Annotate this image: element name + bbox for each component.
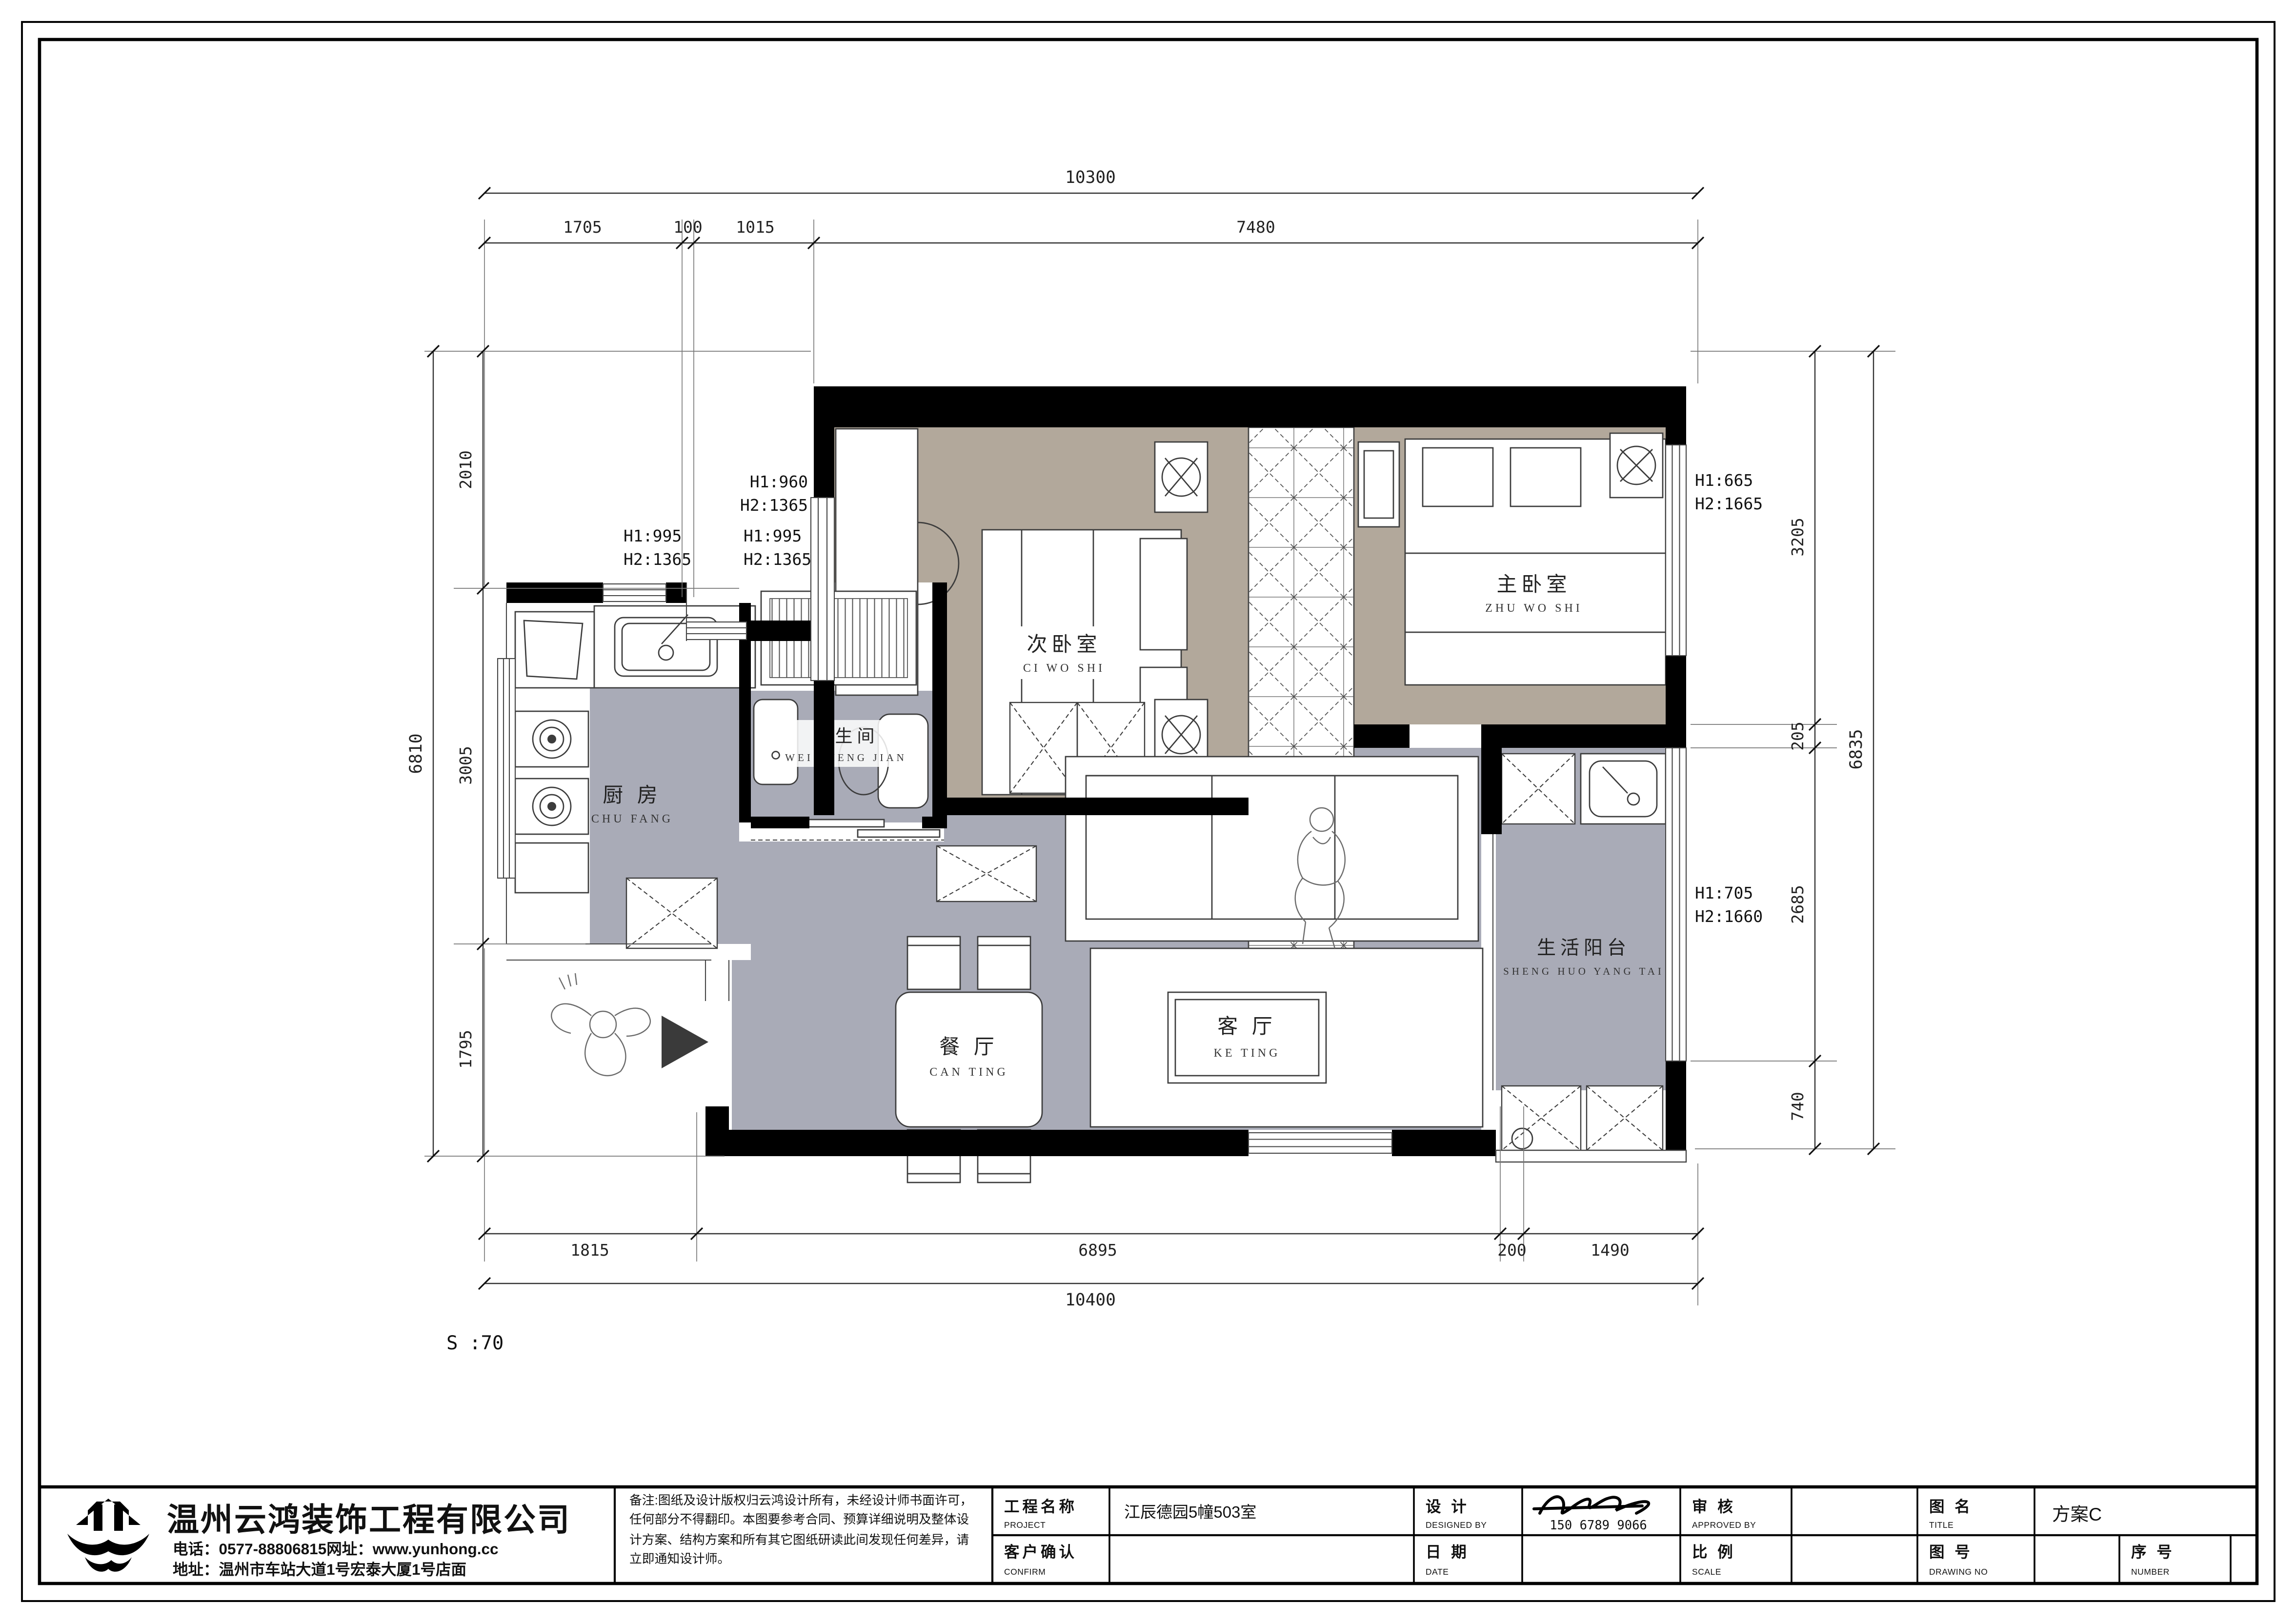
dining-chair: [907, 937, 960, 989]
window-secondary-bedroom: [811, 498, 834, 681]
window-kitchen-left: [498, 659, 515, 878]
stove-burners: [515, 711, 588, 893]
dresser: [1358, 442, 1399, 527]
field-project-label-en: PROJECT: [1004, 1520, 1046, 1530]
sofa: [1066, 757, 1478, 941]
dim-left-seg1: 2010: [456, 450, 475, 489]
dim-left-overall: 6810: [406, 733, 426, 774]
dim-right-overall: 6835: [1847, 729, 1866, 769]
dining-table: [896, 992, 1042, 1127]
field-date-label: 日 期: [1426, 1543, 1470, 1561]
field-approved-label-en: APPROVED BY: [1692, 1520, 1756, 1530]
field-title-label: 图 名: [1929, 1498, 1973, 1515]
annotation-win-d-h2: H2:1665: [1695, 494, 1763, 513]
nightstand-icon: [1610, 433, 1663, 498]
entry: [551, 973, 708, 1076]
room-label-secondary-bedroom: 次卧室: [1027, 633, 1101, 656]
field-confirm-label-en: CONFIRM: [1004, 1567, 1046, 1577]
room-label-dining-en: CAN TING: [929, 1066, 1008, 1079]
annotation-win-b-h1: H1:995: [624, 526, 682, 545]
field-title-label-en: TITLE: [1929, 1520, 1954, 1530]
annotation-win-b-h2: H2:1365: [624, 550, 691, 569]
dining-chair: [978, 937, 1030, 989]
dim-right-seg4: 740: [1788, 1092, 1807, 1121]
fridge: [515, 612, 594, 688]
window-master-bedroom: [1666, 445, 1686, 656]
room-label-living-en: KE TING: [1214, 1047, 1281, 1060]
field-number-label: 序 号: [2131, 1543, 2175, 1561]
field-confirm-label: 客户确认: [1004, 1543, 1077, 1561]
balcony-cabinet-xbox: [1502, 1086, 1663, 1150]
dim-top-seg1: 1705: [563, 218, 602, 237]
dim-left-seg2: 3005: [456, 746, 475, 784]
dim-right-seg1: 3205: [1788, 518, 1807, 556]
scale-note: S :70: [446, 1332, 504, 1354]
field-number-label-en: NUMBER: [2131, 1567, 2170, 1577]
dim-left-seg3: 1795: [456, 1030, 475, 1068]
drawing-sheet: 次卧室 CI WO SHI 主卧室 ZHU WO SHI: [0, 0, 2296, 1623]
annotation-win-a-h1: H1:960: [750, 472, 808, 491]
nightstand-icon: [1155, 442, 1208, 512]
designer-phone: 150 6789 9066: [1550, 1518, 1647, 1533]
dim-top-seg4: 7480: [1236, 218, 1275, 237]
annotation-win-c-h1: H1:995: [744, 526, 802, 545]
dim-right-seg2: 205: [1788, 721, 1807, 751]
dim-top-overall: 10300: [1065, 168, 1116, 187]
dim-bottom-seg2: 6895: [1078, 1241, 1117, 1260]
dim-bottom-overall: 10400: [1065, 1290, 1116, 1310]
dim-bottom-seg4: 1490: [1591, 1241, 1629, 1260]
cabinet-xbox: [626, 878, 717, 948]
field-drawingno-label-en: DRAWING NO: [1929, 1567, 1988, 1577]
room-label-bathroom-en: WEI SHENG JIAN: [785, 752, 907, 763]
company-phone: 电话：0577-88806815网址：www.yunhong.cc: [173, 1540, 499, 1558]
field-designed-label: 设 计: [1426, 1498, 1470, 1515]
field-date-label-en: DATE: [1426, 1567, 1449, 1577]
room-label-kitchen-en: CHU FANG: [591, 813, 673, 825]
room-label-dining: 餐 厅: [939, 1036, 999, 1059]
laundry-sink: [1581, 754, 1666, 824]
dim-top-seg3: 1015: [736, 218, 774, 237]
dim-bottom: 1815 6895 200 1490 10400: [479, 1228, 1704, 1310]
dim-right: 3205 205 2685 740 6835: [1788, 345, 1879, 1155]
cabinet-xbox: [937, 846, 1036, 902]
dim-right-seg3: 2685: [1788, 885, 1807, 923]
dim-top-seg2: 100: [673, 218, 703, 237]
company-name: 温州云鸿装饰工程有限公司: [167, 1502, 571, 1538]
room-label-secondary-bedroom-en: CI WO SHI: [1023, 662, 1105, 675]
person-walking-icon: [551, 973, 650, 1076]
annotation-win-e-h1: H1:705: [1695, 883, 1753, 902]
annotation-win-d-h1: H1:665: [1695, 471, 1753, 490]
dim-left: 6810 2010 3005 1795: [406, 345, 489, 1162]
company-address: 地址：温州市车站大道1号宏泰大厦1号店面: [173, 1561, 466, 1578]
room-label-master-bedroom: 主卧室: [1496, 573, 1571, 596]
washing-machine-xbox: [1502, 754, 1575, 824]
annotation-win-c-h2: H2:1365: [744, 550, 811, 569]
coffee-table-label-box: 客 厅 KE TING: [1168, 992, 1326, 1083]
room-label-balcony-en: SHENG HUO YANG TAI: [1503, 965, 1664, 977]
title-block: 温州云鸿装饰工程有限公司 电话：0577-88806815网址：www.yunh…: [40, 1487, 2257, 1583]
room-label-kitchen: 厨 房: [603, 784, 662, 807]
kitchen-sink: [594, 606, 755, 688]
field-project-label: 工程名称: [1004, 1498, 1077, 1515]
field-drawingno-label: 图 号: [1929, 1543, 1973, 1561]
annotation-win-e-h2: H2:1660: [1695, 907, 1763, 926]
field-scale-label: 比 例: [1692, 1543, 1736, 1561]
window-balcony-glazing: [1666, 748, 1686, 1061]
annotation-win-a-h2: H2:1365: [740, 496, 808, 515]
window-living-bottom: [1249, 1133, 1392, 1153]
dim-bottom-seg3: 200: [1497, 1241, 1527, 1260]
designer-signature: 150 6789 9066: [1534, 1497, 1649, 1533]
field-designed-label-en: DESIGNED BY: [1426, 1520, 1487, 1530]
field-project-value: 江辰德园5幢503室: [1124, 1503, 1256, 1521]
dim-bottom-seg1: 1815: [570, 1241, 609, 1260]
room-label-living: 客 厅: [1217, 1015, 1277, 1038]
balcony-bottom-rail: [1496, 1150, 1686, 1162]
entry-arrow-icon: [662, 1016, 708, 1068]
notes-text: 备注:图纸及设计版权归云鸿设计所有，未经设计师书面许可，任何部分不得翻印。本图要…: [629, 1491, 978, 1569]
room-label-master-bedroom-en: ZHU WO SHI: [1485, 602, 1583, 615]
field-scale-label-en: SCALE: [1692, 1567, 1721, 1577]
field-title-value: 方案C: [2052, 1504, 2102, 1524]
dim-top: 10300 1705 100 1015 7480: [479, 168, 1704, 249]
room-label-balcony: 生活阳台: [1537, 938, 1631, 959]
company-logo-icon: [67, 1499, 149, 1572]
field-approved-label: 审 核: [1692, 1498, 1736, 1515]
